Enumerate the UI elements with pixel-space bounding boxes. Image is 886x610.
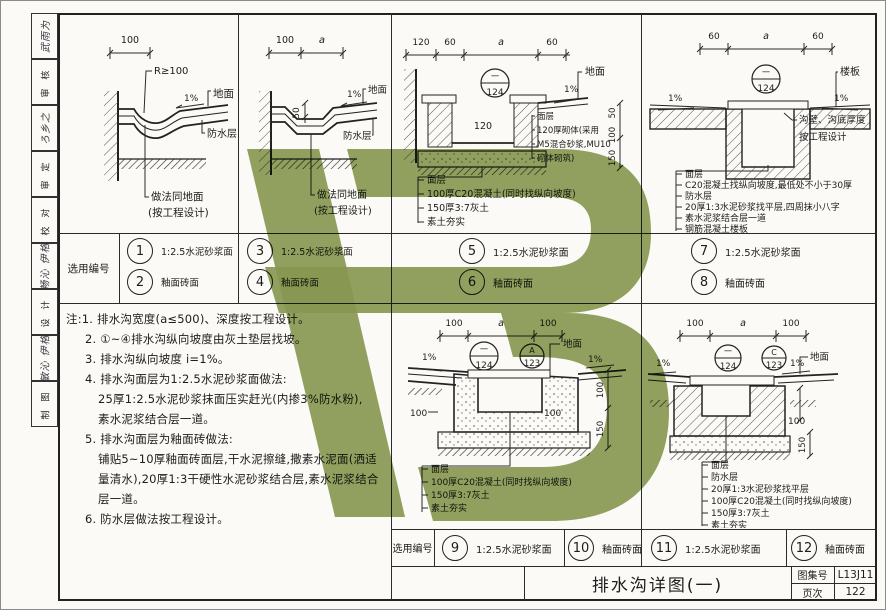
slope-label: 1% [656, 359, 671, 369]
selection-number-badge: 4 [247, 269, 273, 295]
selection-item: 2 釉面砖面 [127, 269, 199, 295]
waterproof-label: 防水层 [343, 130, 372, 142]
detail-2-drawing: 100 a 50 1% 地面 防水层 做法同地面 (按工程设计) [239, 13, 391, 233]
sidebar-label-text: 校 对 [38, 205, 51, 235]
note-line: 5. 排水沟面层为釉面砖做法: [85, 431, 233, 447]
detail-bubble-page: 123 [766, 361, 782, 371]
selection-number-badge: 3 [247, 238, 273, 264]
selection-number-badge: 2 [127, 269, 153, 295]
sidebar-cell-signature: 釋敏沁 伊格沁 [31, 335, 58, 381]
sidebar-cell-label: 审 核 [31, 59, 58, 105]
waterproof-label: 防水层 [207, 127, 237, 140]
selection-desc: 釉面砖面 [281, 275, 319, 289]
selection-item: 5 1:2.5水泥砂浆面 [459, 238, 569, 264]
detail-bubble-page: 124 [757, 84, 774, 94]
layer-label: 素土夯实 [427, 216, 465, 228]
layer-label: 按工程设计 [799, 131, 847, 143]
sidebar-cell-signature: ろ乡之 [31, 105, 58, 151]
selection-desc: 釉面砖面 [825, 541, 865, 556]
detail-4-drawing: 60 a 60 一 124 1% 1% 楼板 沟壁、沟底厚度 按工程设计 面层 … [642, 13, 876, 233]
dim-text: a [498, 318, 504, 329]
note-line: 注:1. 排水沟宽度(a≤500)、深度按工程设计。 [66, 311, 310, 327]
detail-bubble-page: 124 [486, 88, 503, 98]
selection-item: 12 釉面砖面 [791, 535, 865, 561]
detail-5-drawing: 100 a 100 一 124 A 123 1% 1% 地面 100 100 1… [392, 304, 640, 528]
sidebar-cell-signature: 武雨为 [31, 13, 58, 59]
slope-label: 1% [790, 359, 805, 369]
selection-item: 1 1:2.5水泥砂浆面 [127, 238, 233, 264]
dim-text: 50 [608, 108, 618, 119]
layer-label: 面层 [427, 175, 446, 186]
sidebar-cell-label: 制 图 [31, 381, 58, 427]
layer-label: 面层 [711, 460, 729, 471]
dim-text: 150 [596, 421, 606, 437]
sidebar-cell-label: 审 定 [31, 151, 58, 197]
selection-number-badge: 9 [442, 535, 468, 561]
selection-number-badge: 11 [651, 535, 677, 561]
note-line: 2. ①~④排水沟纵向坡度由灰土垫层找坡。 [85, 331, 307, 347]
detail-bubble-page: 124 [720, 362, 736, 372]
layer-label: 沟壁、沟底厚度 [799, 114, 866, 126]
dim-text: a [498, 37, 504, 48]
layer-label: 100厚C20混凝土(同时找纵向坡度) [427, 188, 576, 200]
ground-label: 地面 [213, 87, 234, 100]
dim-text: 120 [474, 121, 492, 132]
selection-desc: 1:2.5水泥砂浆面 [685, 541, 761, 556]
detail-bubble-page: 123 [524, 359, 540, 369]
detail-bubble-top: 一 [762, 68, 770, 77]
layer-label: 面层 [685, 169, 703, 180]
dim-text: 100 [782, 319, 799, 329]
selection-desc: 釉面砖面 [493, 275, 533, 290]
signature-text: 戴畅沁 伊格沁 [37, 243, 52, 289]
dim-text: 120 [412, 38, 429, 48]
dim-text: 100 [788, 417, 805, 427]
dim-text: 150 [608, 150, 618, 166]
divider [391, 529, 877, 530]
dim-text: 60 [708, 32, 720, 42]
note-line: 3. 排水沟纵向坡度 i=1%。 [85, 351, 230, 367]
dim-text: 60 [812, 32, 824, 42]
layer-label: 素水泥浆结合层一道 [685, 212, 766, 224]
slope-label: 1% [347, 90, 362, 100]
sidebar-cell-label: 设 计 [31, 289, 58, 335]
dim-text: 50 [292, 107, 302, 119]
selection-item: 10 釉面砖面 [568, 535, 642, 561]
layer-label: 钢筋混凝土楼板 [685, 223, 748, 233]
layer-label: 100厚C20混凝土(同时找纵向坡度) [431, 476, 572, 488]
note-line: 量清水),20厚1:3干硬性水泥砂浆结合层,素水泥浆结合 [98, 471, 379, 487]
selection-number-badge: 5 [459, 238, 485, 264]
dim-text: 100 [596, 382, 606, 398]
detail-bubble-top: 一 [724, 347, 732, 356]
layer-label: 素土夯实 [431, 502, 467, 514]
selection-desc: 1:2.5水泥砂浆面 [493, 244, 569, 259]
layer-label: 100厚C20混凝土(同时找纵向坡度) [711, 495, 852, 507]
layer-label: 150厚3:7灰土 [711, 507, 770, 519]
layer-label: 防水层 [711, 471, 738, 483]
selection-item: 7 1:2.5水泥砂浆面 [691, 238, 801, 264]
note-line: 6. 防水层做法按工程设计。 [85, 511, 229, 527]
dim-text: 100 [686, 319, 703, 329]
layer-label: 20厚1:3水泥砂浆找平层,四周抹小八字 [685, 201, 840, 213]
selection-row-label: 选用编号 [391, 529, 434, 566]
detail-bubble-top: 一 [480, 345, 488, 354]
page-number-value: 122 [834, 583, 877, 601]
sidebar-label-text: 审 核 [38, 67, 51, 97]
divider [119, 233, 120, 303]
ground-label: 地面 [563, 338, 582, 350]
note-line: 铺贴5~10厚釉面砖面层,干水泥擦缝,撒素水泥面(洒适 [98, 451, 377, 467]
note-label: (按工程设计) [148, 206, 209, 219]
sidebar-cell-signature: 戴畅沁 伊格沁 [31, 243, 58, 289]
layer-label: 素土夯实 [711, 519, 747, 528]
selection-item: 8 釉面砖面 [691, 269, 765, 295]
dim-text: a [740, 318, 746, 329]
selection-item: 4 釉面砖面 [247, 269, 319, 295]
page-number-label: 页次 [791, 583, 834, 601]
dim-text: 150 [798, 437, 808, 453]
dim-text: 100 [445, 319, 462, 329]
note-label: 做法同地面 [151, 190, 204, 203]
note-line: 4. 排水沟面层为1:2.5水泥砂浆面做法: [85, 371, 287, 387]
atlas-number-value: L13J11 [834, 566, 877, 583]
signature-text: ろ乡之 [37, 112, 52, 145]
dim-text: a [763, 31, 769, 42]
selection-number-badge: 8 [691, 269, 717, 295]
dim-text: 60 [546, 38, 558, 48]
slope-label: 1% [184, 94, 199, 104]
selection-row-label: 选用编号 [58, 233, 119, 303]
layer-label: 面层 [537, 112, 554, 122]
selection-item: 3 1:2.5水泥砂浆面 [247, 238, 353, 264]
sidebar-cell-label: 校 对 [31, 197, 58, 243]
atlas-number-label: 图集号 [791, 566, 834, 583]
selection-desc: 1:2.5水泥砂浆面 [281, 244, 353, 258]
layer-label: C20混凝土找纵向坡度,最低处不小于30厚 [685, 179, 852, 191]
selection-number-badge: 1 [127, 238, 153, 264]
dim-text: 100 [544, 409, 561, 419]
note-line: 层一道。 [98, 491, 145, 507]
layer-label: 防水层 [685, 190, 712, 202]
slope-label: 1% [668, 94, 683, 104]
slab-label: 楼板 [840, 65, 860, 78]
selection-number-badge: 12 [791, 535, 817, 561]
dim-text: a [319, 35, 325, 46]
layer-label: 150厚3:7灰土 [427, 202, 489, 214]
selection-number-badge: 7 [691, 238, 717, 264]
note-label: 做法同地面 [317, 188, 367, 201]
selection-number-badge: 10 [568, 535, 594, 561]
sidebar-label-text: 制 图 [38, 389, 51, 419]
detail-bubble-top: C [771, 348, 777, 357]
selection-item: 11 1:2.5水泥砂浆面 [651, 535, 761, 561]
detail-3-drawing: 120 60 a 60 一 124 120 1% 50 100 150 地面 面… [392, 13, 640, 233]
dim-text: 100 [410, 409, 427, 419]
ground-label: 地面 [810, 351, 829, 363]
slope-label: 1% [588, 355, 603, 365]
drawing-title: 排水沟详图(一) [524, 566, 791, 601]
detail-bubble-top: 一 [491, 72, 499, 81]
layer-label: 20厚1:3水泥砂浆找平层 [711, 483, 809, 495]
divider [58, 233, 877, 234]
note-label: (按工程设计) [314, 204, 372, 217]
slope-label: 1% [422, 353, 437, 363]
selection-desc: 釉面砖面 [161, 275, 199, 289]
dim-text: 100 [276, 35, 294, 46]
dim-text: 100 [539, 319, 556, 329]
ground-label: 地面 [585, 65, 605, 78]
layer-label: 120厚砌体(采用 [537, 125, 599, 136]
dim-text: 60 [444, 38, 456, 48]
layer-label: 面层 [431, 464, 449, 475]
sidebar-label-text: 审 定 [38, 159, 51, 189]
ground-label: 地面 [368, 84, 387, 96]
radius-label: R≥100 [154, 66, 188, 77]
detail-bubble-top: A [529, 346, 535, 355]
divider [564, 529, 565, 566]
selection-item: 6 釉面砖面 [459, 269, 533, 295]
selection-desc: 釉面砖面 [602, 541, 642, 556]
divider [786, 529, 787, 566]
selection-desc: 1:2.5水泥砂浆面 [161, 244, 233, 258]
detail-1-drawing: 100 R≥100 1% 地面 防水层 做法同地面 (按工程设计) [58, 13, 238, 233]
slope-label: 1% [564, 85, 579, 95]
sidebar-label-text: 设 计 [38, 297, 51, 327]
selection-desc: 釉面砖面 [725, 275, 765, 290]
note-line: 25厚1:2.5水泥砂浆抹面压实赶光(内掺3%防水粉), [98, 391, 363, 407]
detail-6-drawing: 100 a 100 一 124 C 123 1% 1% 地面 100 150 面… [642, 304, 876, 528]
note-line: 素水泥浆结合层一道。 [98, 411, 215, 427]
signature-text: 釋敏沁 伊格沁 [37, 335, 52, 381]
signature-text: 武雨为 [37, 20, 52, 53]
selection-desc: 1:2.5水泥砂浆面 [725, 244, 801, 259]
layer-label: M5混合砂浆,MU10 [537, 139, 611, 150]
divider [434, 529, 435, 566]
layer-label: 砌体砌筑) [537, 153, 574, 164]
atlas-sheet: 武雨为 审 核 ろ乡之 审 定 校 对 戴畅沁 伊格沁 设 计 釋敏沁 伊格沁 … [0, 0, 886, 610]
selection-number-badge: 6 [459, 269, 485, 295]
layer-label: 150厚3:7灰土 [431, 489, 490, 501]
dim-text: 100 [121, 35, 139, 46]
selection-item: 9 1:2.5水泥砂浆面 [442, 535, 552, 561]
selection-desc: 1:2.5水泥砂浆面 [476, 541, 552, 556]
